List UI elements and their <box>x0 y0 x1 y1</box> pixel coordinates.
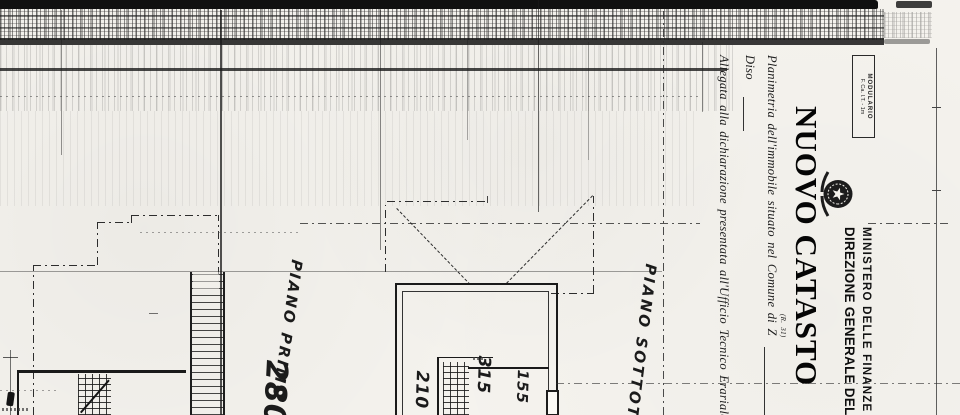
plan1-boundary <box>33 265 34 415</box>
plan1-dim-line <box>140 232 300 233</box>
plan2-dimension: 155 <box>513 369 532 404</box>
modulario-line2: F. Ca. I.T. - 1m <box>859 56 865 137</box>
form-blank-line <box>743 97 744 131</box>
plan2-dimension: 315 <box>473 355 494 394</box>
plan1-cross-tick <box>149 313 158 314</box>
scan-line-h <box>0 68 727 71</box>
form-rule-tick <box>932 190 941 191</box>
margin-text-smudge <box>2 408 29 411</box>
plan2-dimension: 210 <box>411 370 432 409</box>
plan1-stair-hatch-fade <box>193 272 219 290</box>
form-title-ref: (R. 31) <box>779 314 787 338</box>
form-title: NUOVO CATASTO <box>788 106 824 386</box>
plan1-boundary <box>33 265 97 266</box>
plan1-boundary <box>97 222 132 223</box>
scan-line-v <box>467 10 468 140</box>
form-line-diso: Diso <box>742 55 757 80</box>
section-line-horizontal-low <box>556 383 960 384</box>
form-line-planimetria: Planimetria dell'immobile situato nel Co… <box>764 55 779 336</box>
plan2-boundary <box>387 201 487 202</box>
section-line-vertical <box>663 10 664 415</box>
plan1-boundary <box>97 222 98 265</box>
scan-texture <box>0 45 735 111</box>
plan2-boundary <box>593 196 594 293</box>
scan-line-h-faint <box>0 271 662 272</box>
scan-line-v <box>538 0 539 212</box>
scan-line-v <box>588 42 589 160</box>
plan1-boundary <box>218 215 219 275</box>
form-top-rule <box>936 48 937 415</box>
plan2-staircase <box>443 362 469 415</box>
form-rule-tick <box>932 107 941 108</box>
section-line-horizontal <box>300 223 700 224</box>
section-line-horizontal-right <box>868 223 952 224</box>
cadastral-form: MODULARIO F. Ca. I.T. - 1m MINISTERO DEL… <box>698 0 960 415</box>
plan1-dimension: 280 <box>256 359 294 415</box>
form-line-allegata: Allegata alla dichiarazione presentata a… <box>716 55 731 415</box>
plan1-boundary <box>131 215 218 216</box>
plan2-interior-wall <box>437 357 439 415</box>
roof-hip-diagonal <box>396 208 470 285</box>
modulario-box: MODULARIO F. Ca. I.T. - 1m <box>852 55 875 138</box>
margin-tick <box>3 357 18 358</box>
form-direction: DIREZIONE GENERALE DEL CATASTO <box>842 227 858 415</box>
plan2-boundary <box>385 205 386 272</box>
plan1-boundary <box>131 215 132 223</box>
scanned-cadastral-sheet: PIANO PRIMO 280 210 315 155 PIANO SOTTOT… <box>0 0 960 415</box>
form-blank-line <box>764 347 765 415</box>
scan-texture-faint <box>0 111 700 206</box>
margin-blob <box>6 392 15 407</box>
plan1-stair-section-hatch <box>190 272 225 415</box>
form-ministry: MINISTERO DELLE FINANZE <box>860 227 872 412</box>
plan2-window <box>546 390 559 415</box>
scan-line-v <box>61 10 62 155</box>
plan2-corner-tick <box>487 196 488 203</box>
scan-line-v <box>380 10 381 250</box>
scan-line-h-faint <box>0 96 700 97</box>
plan1-wall <box>17 370 186 373</box>
modulario-line1: MODULARIO <box>865 56 872 137</box>
plan2-label: PIANO SOTTOTETTO <box>617 263 660 415</box>
